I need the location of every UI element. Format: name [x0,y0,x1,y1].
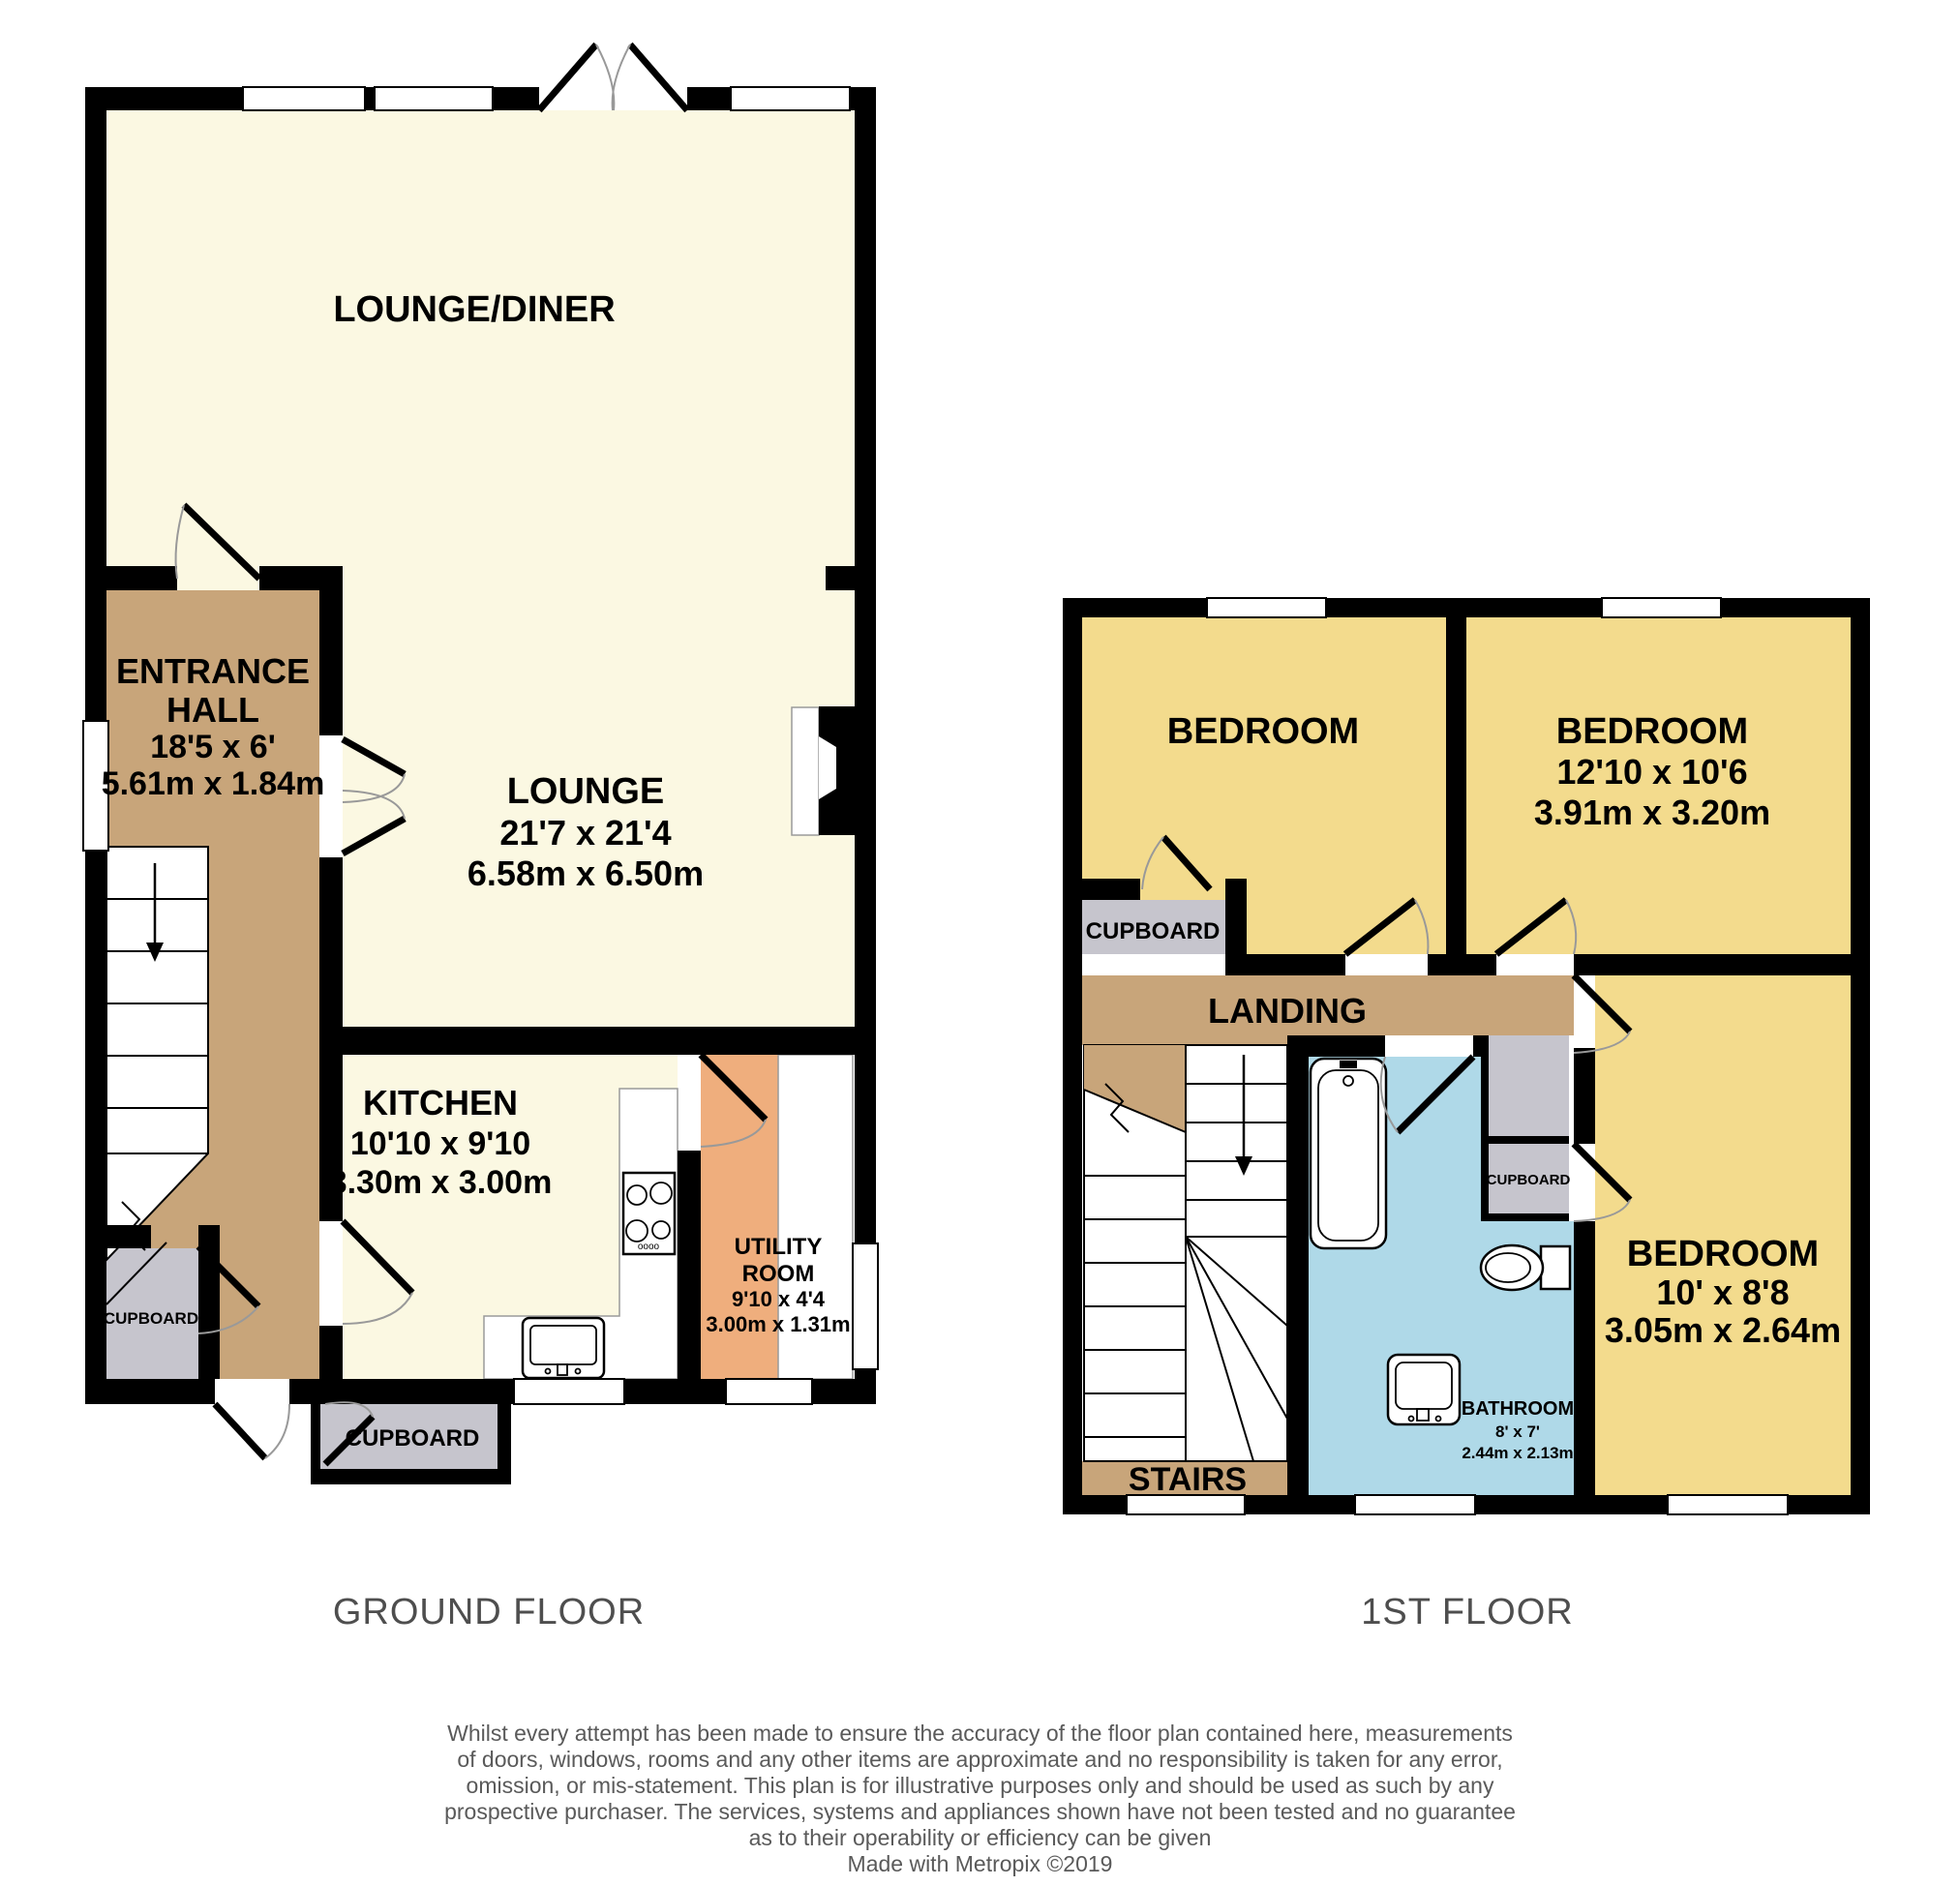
label-entrance-hall: HALL [166,690,259,730]
label-lounge-dims-m: 6.58m x 6.50m [467,853,704,893]
window-icon [1355,1495,1475,1514]
basin-icon [1388,1355,1460,1424]
window-icon [726,1379,812,1404]
window-icon [243,87,365,110]
ground-floor-plan: oooo [58,29,910,1529]
toilet-icon [1481,1245,1570,1290]
fireplace-icon [792,706,855,835]
window-icon [1207,598,1326,617]
label-kitchen-dims-m: 3.30m x 3.00m [329,1164,553,1201]
window-icon [375,87,493,110]
label-bedroom-three-dims-ft: 10' x 8'8 [1656,1272,1789,1312]
floorplan-page: oooo [0,0,1960,1886]
label-kitchen-dims-ft: 10'10 x 9'10 [350,1125,530,1162]
label-lounge: LOUNGE [507,771,665,812]
window-icon [1127,1495,1245,1514]
label-stairs: STAIRS [1129,1461,1247,1498]
window-icon [1602,598,1721,617]
ground-floor-caption: GROUND FLOOR [333,1592,645,1633]
label-entrance-hall-dims-m: 5.61m x 1.84m [102,765,325,802]
label-bedroom-two-dims-m: 3.91m x 3.20m [1534,793,1770,832]
disclaimer-line: Whilst every attempt has been made to en… [0,1721,1960,1747]
label-cupboard-landing: CUPBOARD [1086,918,1221,944]
label-cupboard-bedroom: CUPBOARD [1487,1172,1571,1188]
stove-knobs: oooo [638,1242,660,1252]
label-utility-dims-m: 3.00m x 1.31m [706,1312,850,1336]
bathtub-icon [1311,1059,1386,1248]
window-icon [853,1243,878,1369]
label-bathroom-dims-ft: 8' x 7' [1495,1422,1540,1441]
airing-cupboard [1489,1035,1569,1136]
label-bathroom-dims-m: 2.44m x 2.13m [1462,1444,1573,1462]
first-staircase [1084,1045,1287,1461]
sink-icon [523,1318,604,1378]
label-utility: ROOM [742,1261,815,1287]
label-bedroom-one: BEDROOM [1167,711,1359,752]
metropix-credit: Made with Metropix ©2019 [0,1851,1960,1877]
label-bathroom: BATHROOM [1462,1398,1574,1420]
label-bedroom-three-dims-m: 3.05m x 2.64m [1605,1310,1841,1350]
first-floor-caption: 1ST FLOOR [1361,1592,1573,1633]
french-doors [539,45,687,110]
disclaimer-line: prospective purchaser. The services, sys… [0,1799,1960,1825]
front-door [215,1404,289,1458]
label-cupboard-hall: CUPBOARD [104,1309,198,1328]
disclaimer-line: of doors, windows, rooms and any other i… [0,1747,1960,1773]
label-cupboard-rear: CUPBOARD [346,1425,480,1452]
label-utility-dims-ft: 9'10 x 4'4 [732,1287,826,1311]
label-utility: UTILITY [735,1234,823,1260]
label-bedroom-three: BEDROOM [1627,1234,1819,1274]
first-floor-plan: BEDROOM BEDROOM 12'10 x 10'6 3.91m x 3.2… [1055,590,1878,1529]
disclaimer-line: omission, or mis-statement. This plan is… [0,1773,1960,1799]
label-landing: LANDING [1208,991,1367,1031]
label-bedroom-two: BEDROOM [1556,711,1748,752]
window-icon [514,1379,624,1404]
window-icon [1668,1495,1788,1514]
label-kitchen: KITCHEN [363,1083,518,1123]
label-entrance-hall-dims-ft: 18'5 x 6' [150,729,276,765]
label-bedroom-two-dims-ft: 12'10 x 10'6 [1556,752,1747,792]
label-entrance-hall: ENTRANCE [116,651,310,691]
stove-icon: oooo [623,1173,675,1254]
label-lounge-dims-ft: 21'7 x 21'4 [499,813,671,853]
disclaimer-text: Whilst every attempt has been made to en… [0,1721,1960,1877]
label-lounge-diner: LOUNGE/DINER [333,289,615,330]
window-icon [731,87,850,110]
disclaimer-line: as to their operability or efficiency ca… [0,1825,1960,1851]
